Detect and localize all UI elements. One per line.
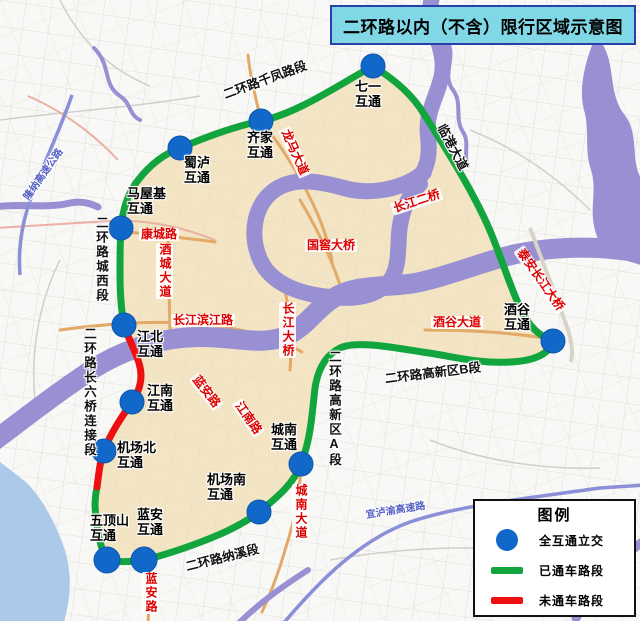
dot-jichangnan — [247, 500, 271, 524]
interchange-label-qijia: 齐家 互通 — [247, 131, 273, 160]
legend-row-open: 已通车路段 — [475, 555, 634, 585]
closed-road-line-symbol — [475, 597, 539, 604]
legend-label-open: 已通车路段 — [539, 562, 604, 579]
road-label-jiugudadao: 酒谷大道 — [431, 316, 483, 329]
road-label-changjiangdaqiao: 长江大桥 — [279, 302, 296, 358]
interchange-dot-symbol — [475, 529, 539, 551]
road-label-jiucheng: 酒城大道 — [156, 243, 173, 299]
interchange-label-chengnan: 城南 互通 — [271, 423, 297, 452]
interchange-label-mawuji: 马屋基 互通 — [127, 187, 166, 216]
interchange-label-qiyi: 七一 互通 — [355, 80, 381, 109]
restricted-area-map: 七一 互通 齐家 互通 蜀泸 互通 马屋基 互通 江北 互通 江南 互通 机场北… — [0, 0, 640, 621]
dot-wudingshan — [94, 547, 120, 573]
section-label-gaoxin-a: 二环路高新区A段 — [327, 350, 341, 468]
section-label-liuqiao: 二环路长六桥连接段 — [82, 327, 96, 458]
interchange-label-jiangbei: 江北 互通 — [137, 330, 163, 359]
road-label-chengnandadao: 城南大道 — [292, 484, 309, 540]
dot-lanan — [131, 547, 157, 573]
dot-chengnan — [289, 452, 313, 476]
legend: 图例 全互通立交 已通车路段 未通车路段 — [473, 499, 636, 617]
road-label-kangcheng: 康城路 — [139, 228, 179, 241]
map-title: 二环路以内（不含）限行区域示意图 — [330, 5, 636, 45]
road-label-guojiao: 国窖大桥 — [305, 239, 357, 252]
dot-mawuji — [109, 216, 133, 240]
dot-qiyi — [361, 54, 385, 78]
interchange-label-shulu: 蜀泸 互通 — [184, 156, 210, 185]
legend-label-closed: 未通车路段 — [539, 592, 604, 609]
road-label-lananlu-south: 蓝安路 — [142, 572, 159, 614]
interchange-label-lanan: 蓝安 互通 — [137, 508, 163, 537]
legend-row-interchange: 全互通立交 — [475, 525, 634, 555]
dot-jiugu — [541, 329, 565, 353]
interchange-label-jichangnan: 机场南 互通 — [207, 473, 246, 502]
interchange-label-jiangnan: 江南 互通 — [147, 384, 173, 413]
road-label-binjiang: 长江滨江路 — [171, 314, 235, 327]
open-road-line-symbol — [475, 567, 539, 574]
interchange-label-jichangbei: 机场北 互通 — [117, 441, 156, 470]
dot-jiangnan — [120, 390, 144, 414]
legend-title: 图例 — [475, 504, 634, 525]
legend-label-interchange: 全互通立交 — [539, 532, 604, 549]
dot-jiangbei — [112, 313, 136, 337]
section-label-chengxi: 二环路城西段 — [94, 216, 108, 303]
legend-row-closed: 未通车路段 — [475, 585, 634, 615]
interchange-label-jiugu: 酒谷 互通 — [504, 303, 530, 332]
interchange-label-wudingshan: 五顶山 互通 — [90, 514, 129, 543]
